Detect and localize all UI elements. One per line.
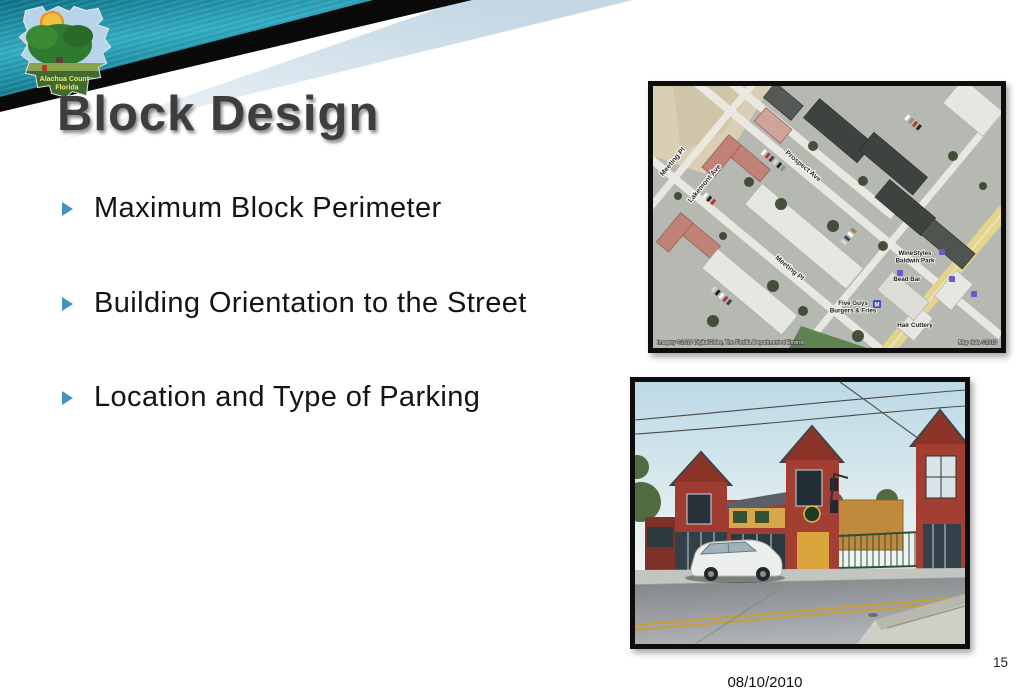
aerial-map-image: M Meeting Pl Lakemont Ave Prospect Ave M… xyxy=(648,81,1006,353)
map-attribution: Map data ©2010 xyxy=(959,339,998,346)
poi-label: Hair Cuttery xyxy=(897,322,933,329)
slide: Alachua County, Florida Block Design Max… xyxy=(0,0,1024,698)
poi-label: Bead Bar xyxy=(893,276,921,283)
bullet-arrow-icon xyxy=(62,202,73,216)
bullet-arrow-icon xyxy=(62,297,73,311)
bullet-text: Building Orientation to the Street xyxy=(94,285,527,323)
bullet-item: Maximum Block Perimeter xyxy=(62,190,662,228)
bullet-item: Building Orientation to the Street xyxy=(62,285,662,323)
bullet-arrow-icon xyxy=(62,391,73,405)
map-attribution: Imagery ©2010 DigitalGlobe, The Florida … xyxy=(657,339,805,346)
poi-label: Burgers & Fries xyxy=(830,308,877,315)
page-title: Block Design xyxy=(57,88,379,142)
poi-label: Baldwin Park xyxy=(896,258,935,265)
bullet-text: Maximum Block Perimeter xyxy=(94,190,442,228)
bullet-item: Location and Type of Parking xyxy=(62,379,662,417)
storefront-sign xyxy=(804,506,820,522)
poi-label: Five Guys xyxy=(838,300,868,307)
poi-label: WineStyles xyxy=(899,250,933,257)
slide-date: 08/10/2010 xyxy=(689,674,841,691)
bullet-text: Location and Type of Parking xyxy=(94,379,480,417)
street-photo-image xyxy=(630,377,970,649)
logo-text-line1: Alachua County, xyxy=(40,76,95,83)
slide-page-number: 15 xyxy=(993,655,1008,670)
bullet-list: Maximum Block Perimeter Building Orienta… xyxy=(62,190,662,474)
